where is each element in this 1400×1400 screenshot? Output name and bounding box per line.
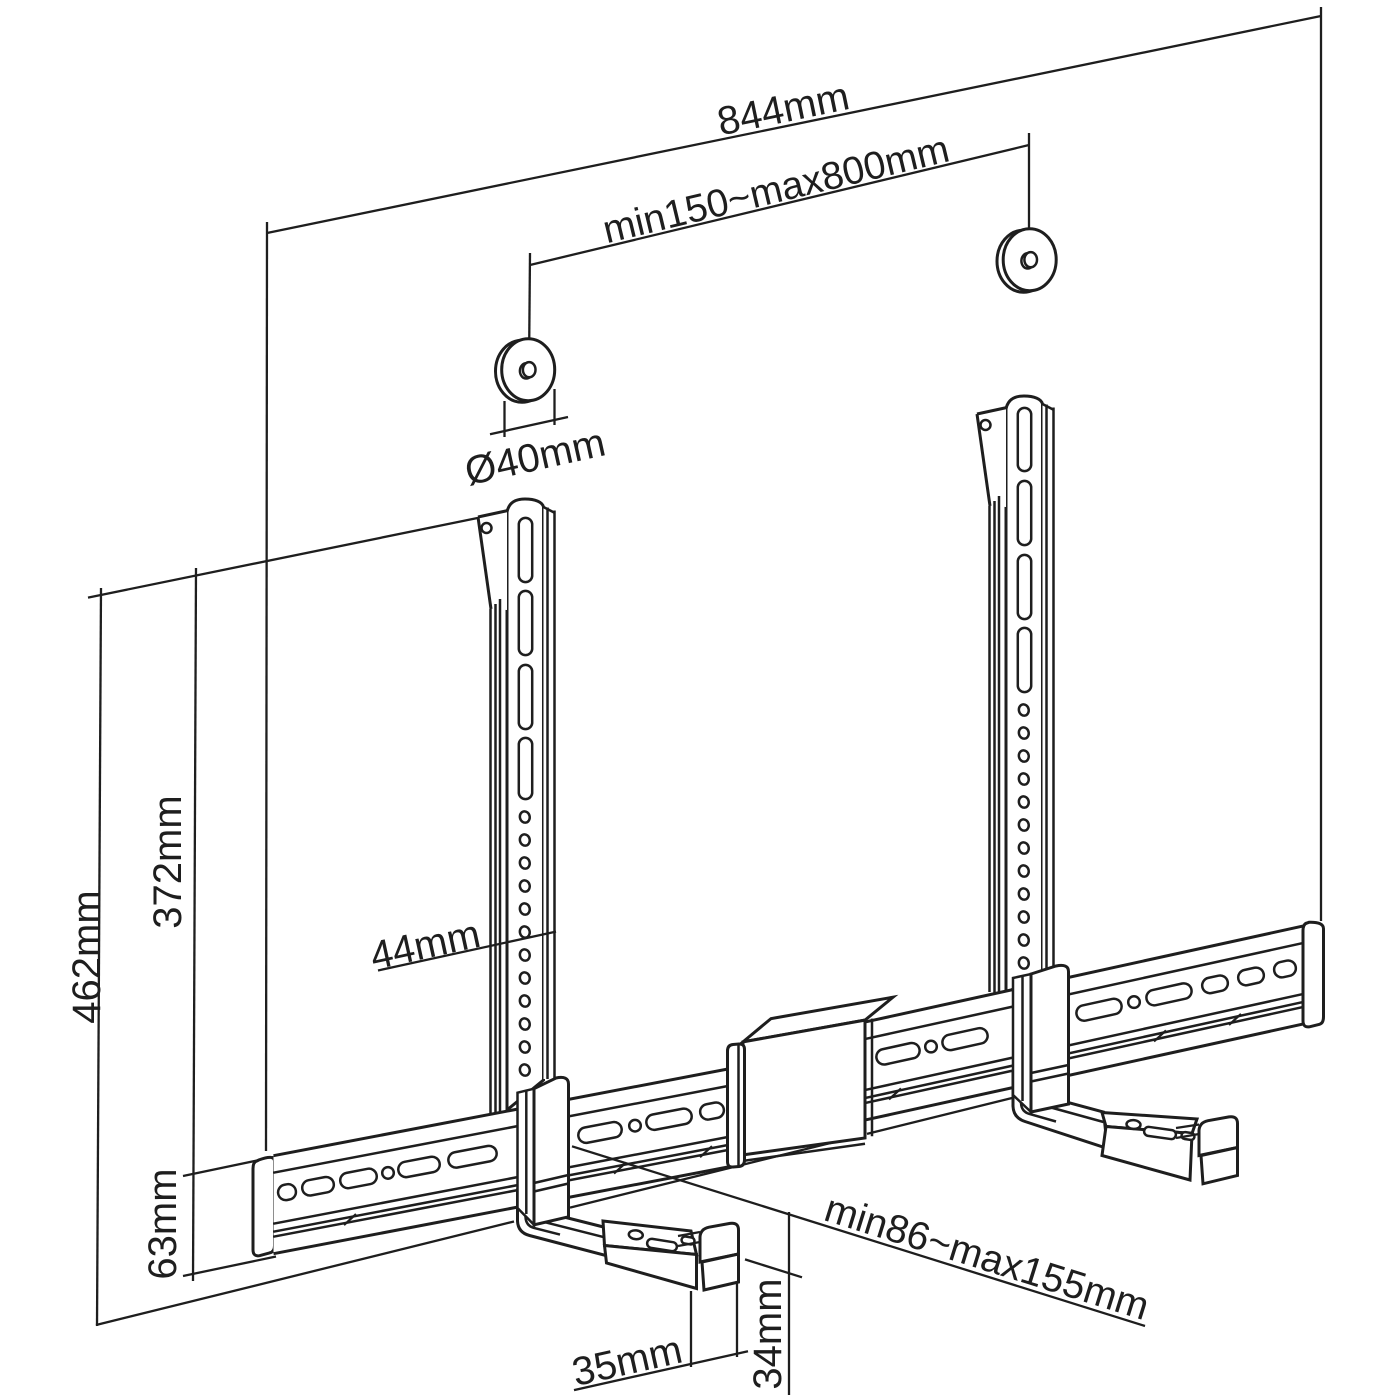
svg-text:34mm: 34mm (746, 1278, 790, 1389)
svg-text:372mm: 372mm (146, 795, 190, 928)
svg-text:63mm: 63mm (141, 1168, 185, 1279)
svg-text:462mm: 462mm (65, 890, 109, 1023)
